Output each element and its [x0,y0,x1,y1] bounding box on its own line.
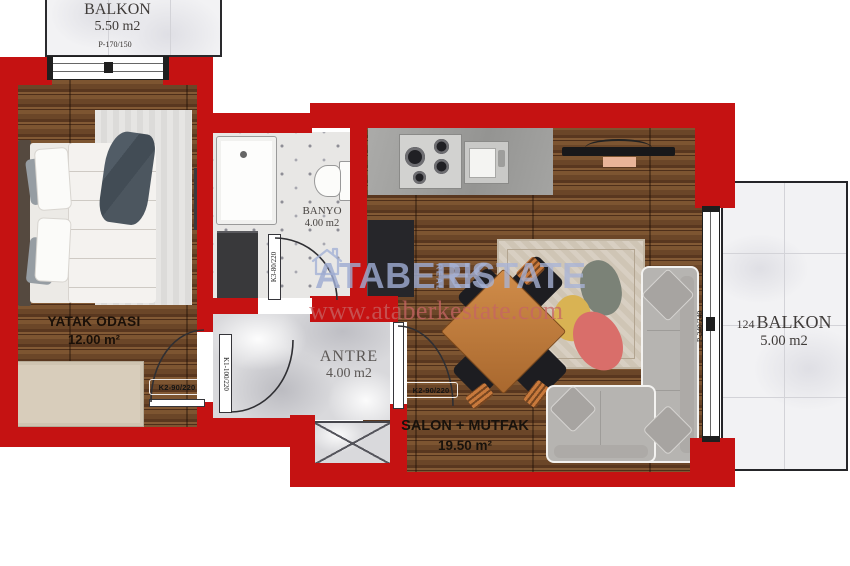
living-area: 19.50 m² [398,438,532,454]
hall-label: ANTRE 4.00 m2 [307,348,391,382]
entry-door-arc [225,333,299,417]
shower-tray [216,136,277,225]
bedroom-dresser [13,361,144,427]
tv-shelf [603,157,636,167]
hall-area: 4.00 m2 [307,366,391,382]
bathroom-label: BANYO 4.00 m2 [293,205,351,230]
hob-burner [413,171,426,184]
balcony-top-area: 5.50 m2 [60,19,175,35]
slider-cap [703,436,719,441]
media-console [366,220,414,297]
bedroom-window [47,56,169,80]
living-label: SALON + MUTFAK 19.50 m² [398,418,532,453]
bedroom-door-arc [146,326,210,408]
living-name: SALON + MUTFAK [398,418,532,435]
balcony-top-name: BALKON [60,1,175,19]
wall-living-right-upper [695,128,735,208]
bathroom-door-arc [270,232,342,304]
bathroom-area: 4.00 m2 [293,218,351,230]
kitchen-sink [464,141,509,184]
wall-window-left-flank [0,57,52,85]
balcony-door-label-text: P-240/240 [696,310,705,341]
toilet-bowl [314,165,341,197]
balcony-side-number: 124 [737,318,755,333]
balcony-door-label: P-240/240 [692,288,708,364]
sink-basin [469,148,496,178]
wall-living-top [310,103,735,128]
living-door-label: K2-90/220 [404,382,458,398]
wall-bathroom-bottom [205,298,258,314]
sofa-backrest [554,445,648,458]
sink-faucet [498,150,505,167]
kitchen-hob [399,134,462,189]
bathroom-name: BANYO [293,205,351,218]
wall-tv [562,147,675,156]
balcony-side-label: 124 BALKON 5.00 m2 [728,312,840,349]
hob-burner [434,159,449,174]
shower-drain [240,151,247,158]
bathroom-cabinet [217,231,258,298]
window-cap [163,57,168,79]
living-door-label-text: K2-90/220 [413,386,450,395]
bed-pillow-white-1 [34,147,72,211]
window-mullion [104,62,113,73]
bedroom-area: 12.00 m² [38,333,150,348]
wall-bathroom-right [350,113,367,322]
hob-burner [405,147,425,167]
wall-living-bottom [295,472,735,487]
balcony-side-name: BALKON [757,312,832,333]
bedroom-label: YATAK ODASI 12.00 m² [38,314,150,347]
wall-left-outer [0,57,18,447]
window-cap [48,57,53,79]
bedroom-name: YATAK ODASI [38,314,150,330]
balcony-side-area: 5.00 m2 [728,333,840,350]
bedroom-door-label-text: K2-90/220 [159,383,196,392]
slider-cap [703,207,719,212]
wall-bathroom-top [205,113,312,133]
hall-name: ANTRE [307,348,391,366]
living-door-arc [393,320,459,412]
bed-pillow-white-2 [34,217,71,283]
wall-balcony-door-lower [690,438,735,487]
shaft [313,421,392,466]
wall-bedroom-bottom [0,427,213,447]
wall-window-right-flank [163,57,213,85]
floor-plan: BALKON 5.50 m2 P-170/150 124 BALKON 5.00… [0,0,850,566]
bedroom-door-label: K2-90/220 [149,379,205,395]
bedroom-window-label: P-170/150 [85,40,145,49]
balcony-top-label: BALKON 5.50 m2 [60,1,175,35]
hob-burner [434,139,449,154]
